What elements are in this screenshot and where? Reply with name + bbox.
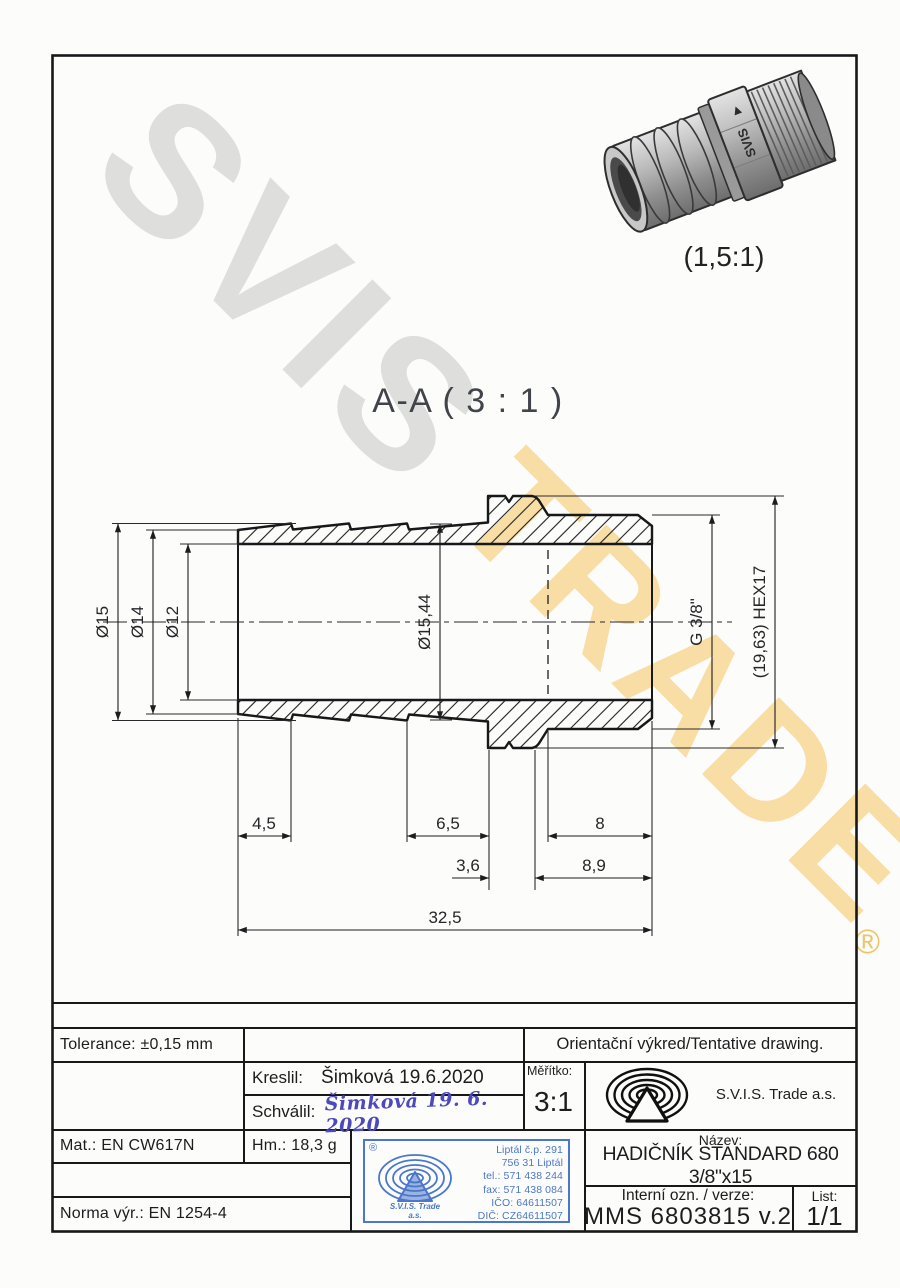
schvalil-signature: Šimková 19. 6. 2020 [325,1087,521,1138]
tolerance-field: Tolerance: ±0,15 mm [60,1029,240,1060]
dim-8: 8 [595,814,604,833]
material-field: Mat.: EN CW617N [60,1131,240,1161]
dim-hex: (19,63) HEX17 [750,566,769,678]
part-title: HADIČNÍK STANDARD 680 3/8"x15 [584,1149,857,1183]
orientation-note: Orientační výkred/Tentative drawing. [523,1029,857,1060]
dim-thread: G 3/8" [687,598,706,646]
company-name: S.V.I.S. Trade a.s. [700,1082,852,1106]
stamp-address: Liptál č.p. 291 756 31 Liptál tel.: 571 … [478,1144,563,1223]
stamp-address-line: IČO: 64611507 [478,1197,563,1210]
interni-value-text: MMS 6803815 v.2 [584,1203,792,1231]
company-logo-icon [602,1066,692,1124]
stamp-address-line: 756 31 Liptál [478,1157,563,1170]
list-value-text: 1/1 [806,1201,842,1232]
lower-wall [238,700,652,748]
watermark-registered-icon: ® [855,923,880,961]
stamp-company: S.V.I.S. Trade a.s. [373,1203,457,1220]
product-pictorial: SVIS [593,63,844,245]
norm-field: Norma výr.: EN 1254-4 [60,1198,340,1229]
dim-d12: Ø12 [163,606,182,638]
meritko-label: Měřítko: [527,1063,583,1079]
pictorial-scale-label: (1,5:1) [684,241,765,272]
dim-36: 3,6 [456,856,480,875]
stamp-company-line2: a.s. [408,1211,421,1220]
list-value: 1/1 [792,1203,857,1230]
interni-value: MMS 6803815 v.2 [584,1203,792,1230]
drawing-sheet: SVIS TRADE ® SVIS [0,0,900,1288]
dim-45: 4,5 [252,814,276,833]
part-title-text: HADIČNÍK STANDARD 680 3/8"x15 [584,1143,857,1189]
norm-text: Norma výr.: EN 1254-4 [60,1205,227,1223]
grid-line [350,1129,352,1232]
stamp-address-line: fax: 571 438 084 [478,1184,563,1197]
grid-line [52,1162,350,1164]
kreslil-value: Šimková 19.6.2020 [321,1067,484,1089]
grid-line [243,1027,245,1164]
orientation-note-text: Orientační výkred/Tentative drawing. [557,1035,824,1054]
dim-65: 6,5 [436,814,460,833]
dim-89: 8,9 [582,856,606,875]
mass-field: Hm.: 18,3 g [252,1131,347,1161]
dim-d1544: Ø15,44 [415,594,434,650]
section-title: A-A ( 3 : 1 ) [372,382,563,420]
watermark-svis: SVIS [57,55,529,527]
meritko-value: 3:1 [523,1078,584,1126]
meritko-value-text: 3:1 [534,1086,573,1118]
stamp-logo-icon [375,1153,455,1203]
company-name-text: S.V.I.S. Trade a.s. [716,1086,836,1103]
dim-325: 32,5 [428,908,461,927]
tolerance-text: Tolerance: ±0,15 mm [60,1036,213,1054]
material-text: Mat.: EN CW617N [60,1137,195,1155]
company-stamp: ® S.V.I.S. Trade a.s. Liptál č.p. 291 75… [363,1139,570,1223]
stamp-address-line: Liptál č.p. 291 [478,1144,563,1157]
grid-line [52,1002,857,1004]
schvalil-row: Schválil: Šimková 19. 6. 2020 [252,1096,520,1128]
mass-text: Hm.: 18,3 g [252,1137,337,1155]
stamp-address-line: DIČ: CZ64611507 [478,1210,563,1223]
dim-d15: Ø15 [93,606,112,638]
dim-d14: Ø14 [128,606,147,638]
schvalil-label: Schválil: [252,1102,315,1122]
stamp-address-line: tel.: 571 438 244 [478,1170,563,1183]
kreslil-label: Kreslil: [252,1068,303,1088]
meritko-label-text: Měřítko: [527,1064,572,1078]
